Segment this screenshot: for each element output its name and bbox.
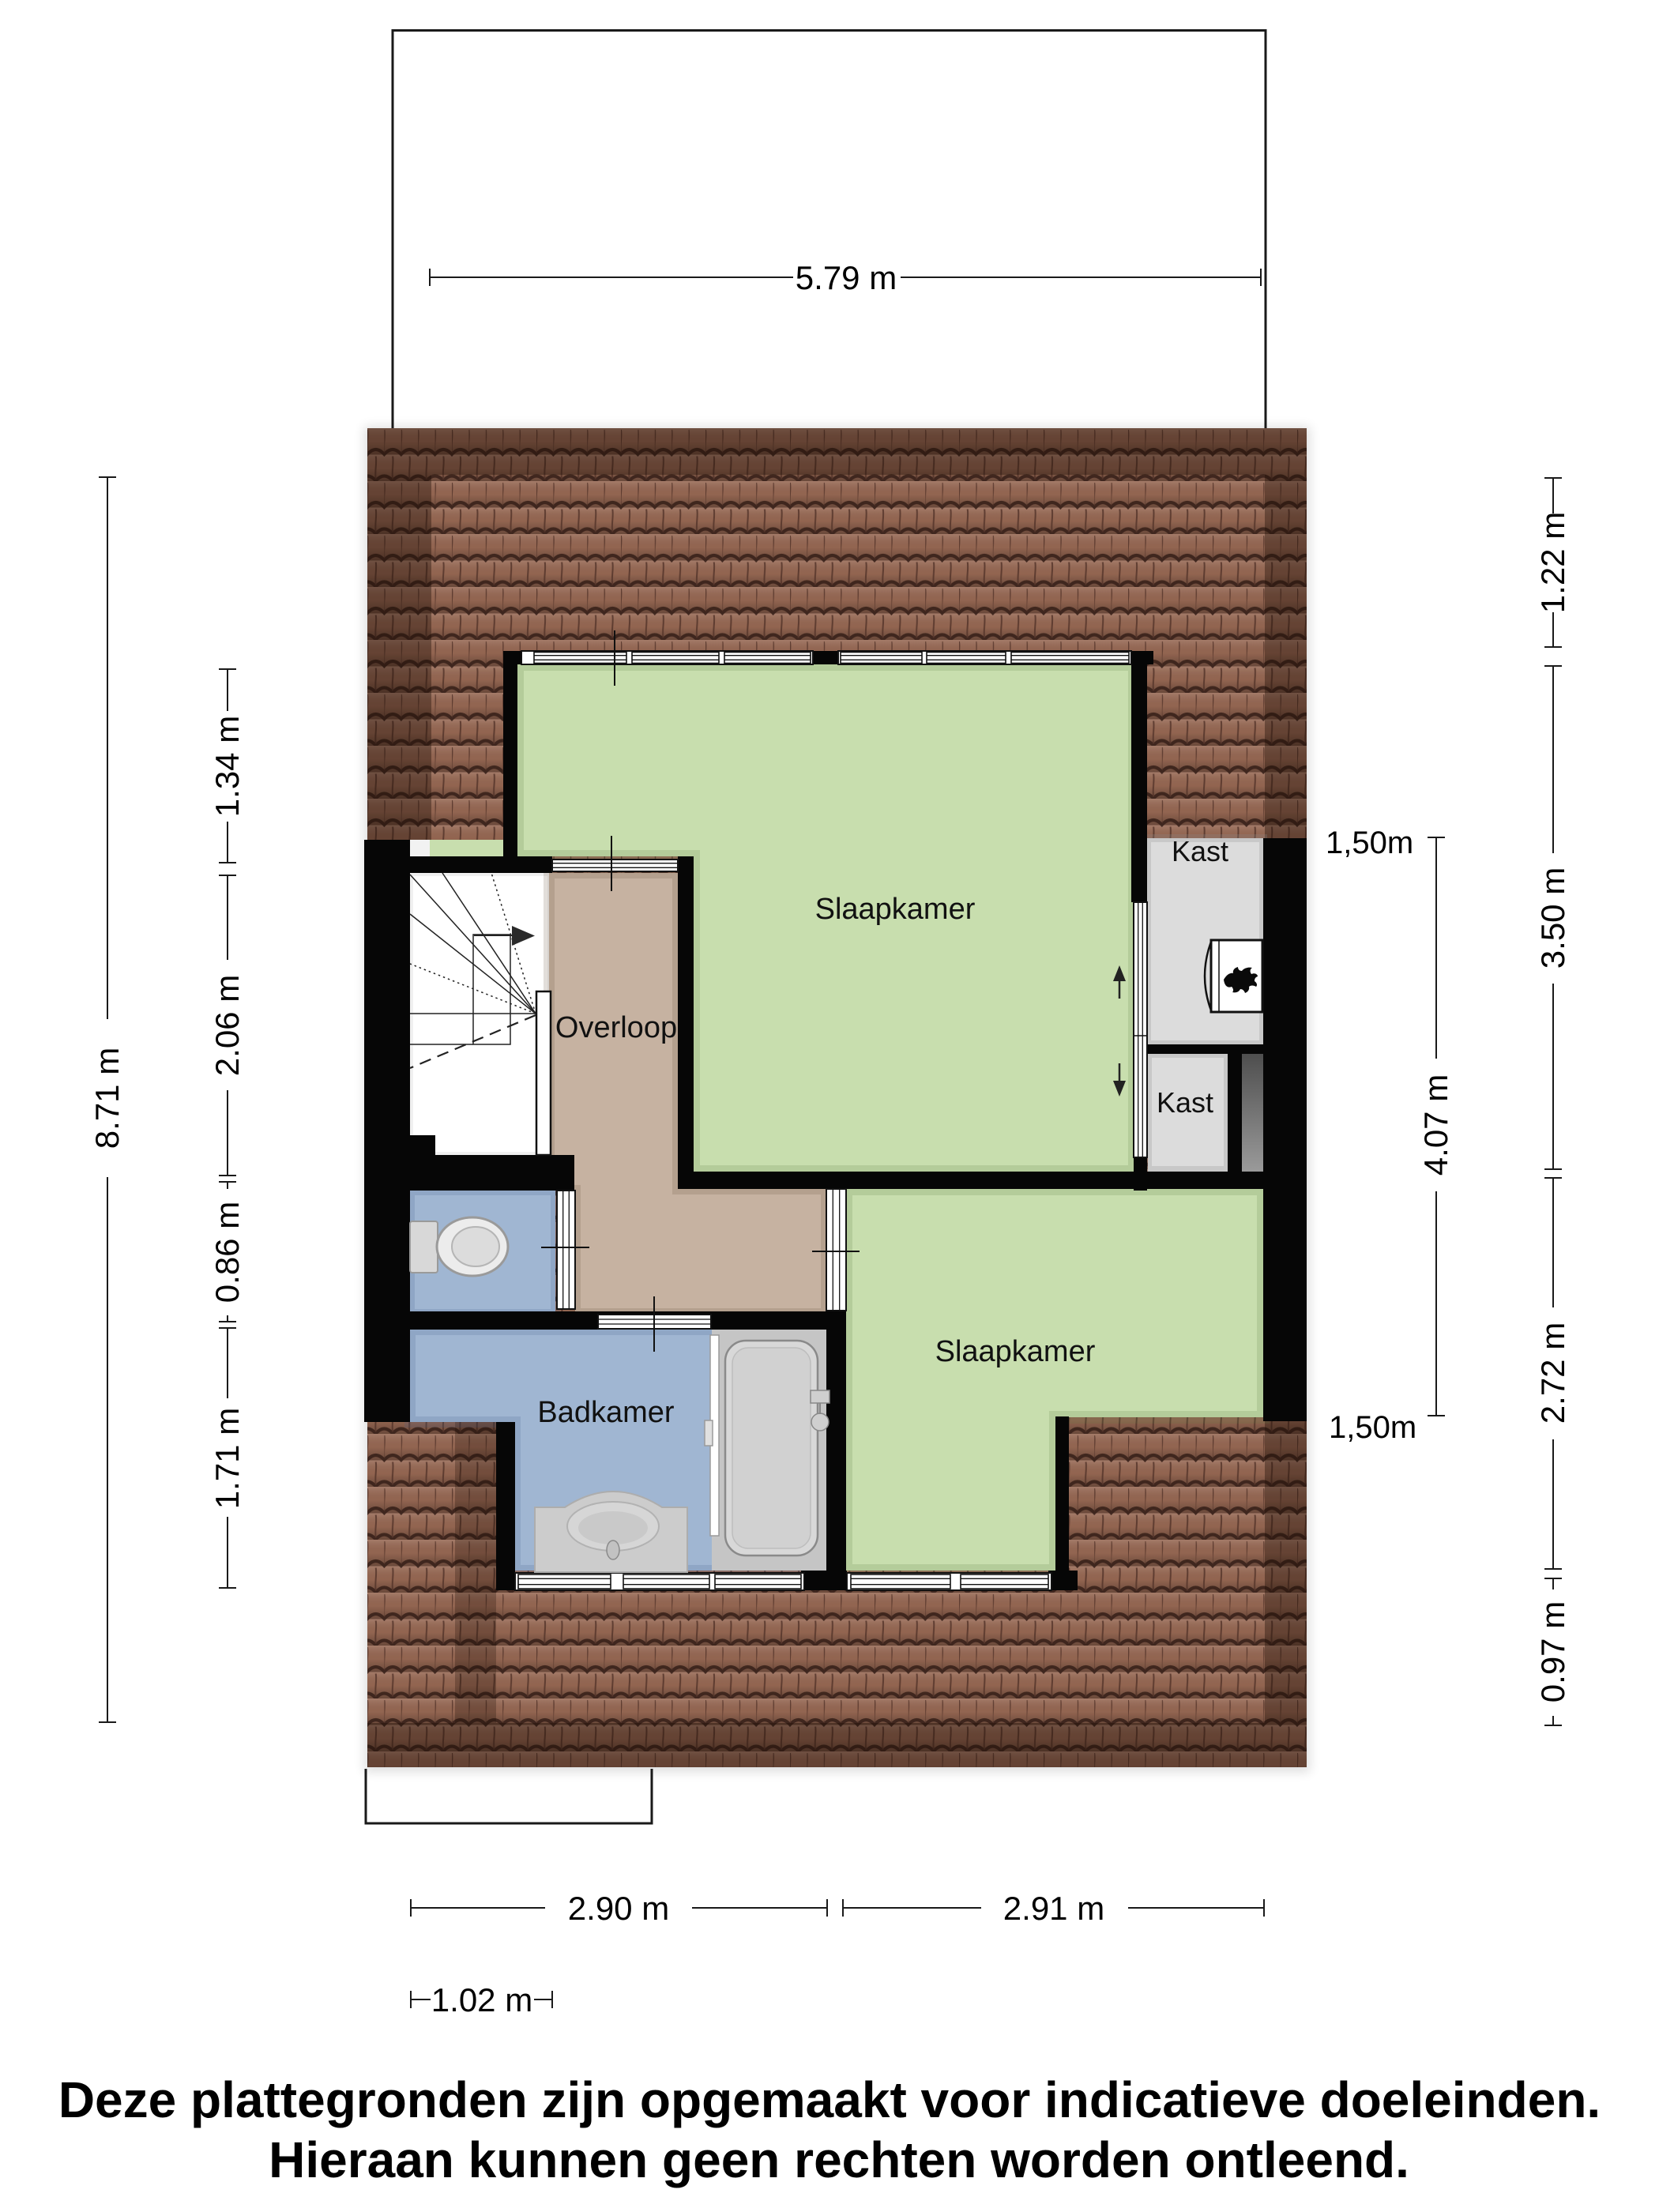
svg-text:5.79 m: 5.79 m — [796, 259, 897, 296]
svg-text:Kast: Kast — [1172, 835, 1228, 867]
svg-text:2.06 m: 2.06 m — [209, 975, 246, 1076]
svg-text:Slaapkamer: Slaapkamer — [815, 893, 976, 926]
svg-text:1,50m: 1,50m — [1326, 826, 1413, 860]
svg-text:2.72 m: 2.72 m — [1534, 1322, 1571, 1424]
svg-text:4.07 m: 4.07 m — [1417, 1074, 1454, 1176]
svg-text:1.71 m: 1.71 m — [209, 1408, 246, 1509]
svg-text:Kast: Kast — [1157, 1086, 1213, 1119]
svg-text:Badkamer: Badkamer — [537, 1396, 675, 1429]
svg-text:Slaapkamer: Slaapkamer — [935, 1335, 1096, 1368]
svg-text:1.02 m: 1.02 m — [431, 1981, 532, 2018]
svg-text:1.34 m: 1.34 m — [209, 716, 246, 817]
svg-text:Hieraan kunnen geen rechten wo: Hieraan kunnen geen rechten worden ontle… — [269, 2131, 1409, 2188]
svg-text:3.50 m: 3.50 m — [1534, 867, 1571, 969]
svg-text:Deze plattegronden zijn opgema: Deze plattegronden zijn opgemaakt voor i… — [58, 2071, 1601, 2128]
svg-text:Overloop: Overloop — [555, 1011, 677, 1044]
svg-text:0.86 m: 0.86 m — [209, 1202, 246, 1303]
svg-text:2.90 m: 2.90 m — [568, 1890, 669, 1927]
svg-text:1.22 m: 1.22 m — [1534, 512, 1571, 613]
svg-text:8.71 m: 8.71 m — [88, 1048, 126, 1149]
svg-text:1,50m: 1,50m — [1329, 1410, 1416, 1445]
svg-text:0.97 m: 0.97 m — [1534, 1601, 1571, 1702]
svg-text:2.91 m: 2.91 m — [1003, 1890, 1104, 1927]
